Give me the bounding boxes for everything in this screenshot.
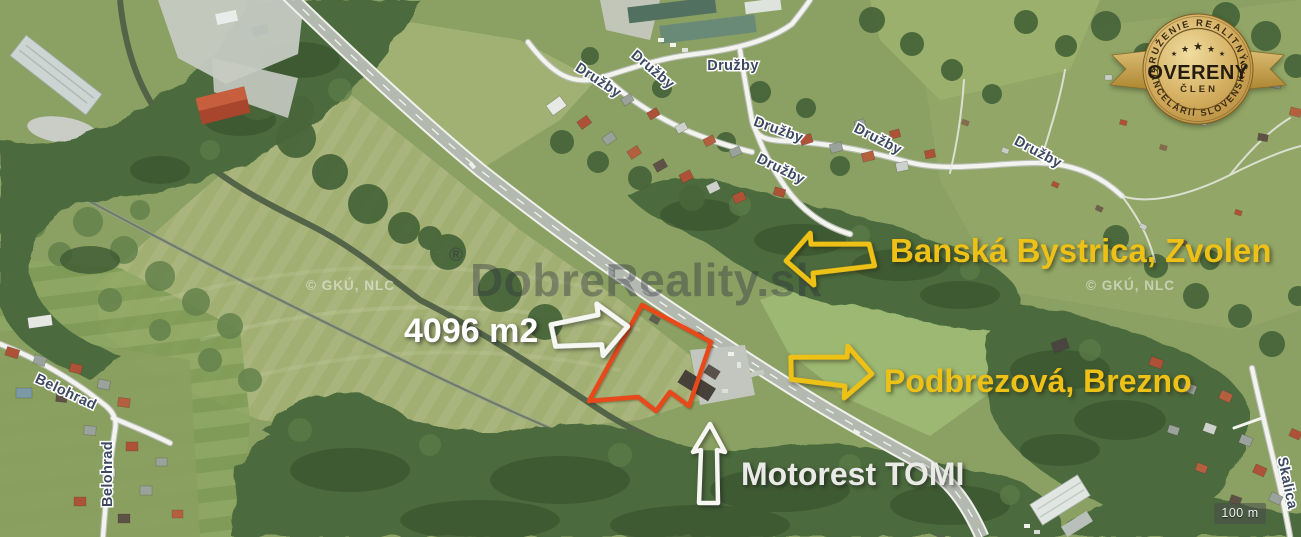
poi-label-motorest: Motorest TOMI bbox=[741, 456, 964, 492]
verified-member-badge: ZDRUŽENIE REALITNÝCH KANCELÁRIÍ SLOVENSK… bbox=[1102, 5, 1294, 137]
parcel-area-label: 4096 m2 bbox=[404, 312, 538, 350]
map-scale-bar: 100 m bbox=[1214, 503, 1266, 524]
badge-star-icon: ★ bbox=[1171, 50, 1177, 58]
badge-star-icon: ★ bbox=[1193, 40, 1203, 53]
map-source-watermark: © GKÚ, NLC bbox=[306, 278, 395, 293]
map-source-watermark: © GKÚ, NLC bbox=[1086, 278, 1175, 293]
street-label-belohrad: Belohrad bbox=[100, 441, 116, 507]
badge-star-icon: ★ bbox=[1219, 50, 1225, 58]
aerial-map-listing-image: Družby Družby Družby Družby Družby Družb… bbox=[0, 0, 1301, 537]
brand-watermark: ® DobreReality.sk bbox=[449, 245, 822, 306]
scale-bar-label: 100 m bbox=[1221, 506, 1258, 520]
badge-star-icon: ★ bbox=[1181, 45, 1189, 55]
badge-title: OVERENÝ bbox=[1147, 60, 1248, 84]
street-label-druzby: Družby bbox=[707, 58, 759, 74]
direction-label-west: Banská Bystrica, Zvolen bbox=[890, 232, 1272, 269]
brand-watermark-text: DobreReality.sk bbox=[470, 254, 822, 306]
badge-member-label: ČLEN bbox=[1180, 83, 1218, 95]
badge-star-icon: ★ bbox=[1207, 45, 1215, 55]
registered-mark: ® bbox=[449, 245, 463, 266]
direction-label-east: Podbrezová, Brezno bbox=[884, 363, 1192, 399]
